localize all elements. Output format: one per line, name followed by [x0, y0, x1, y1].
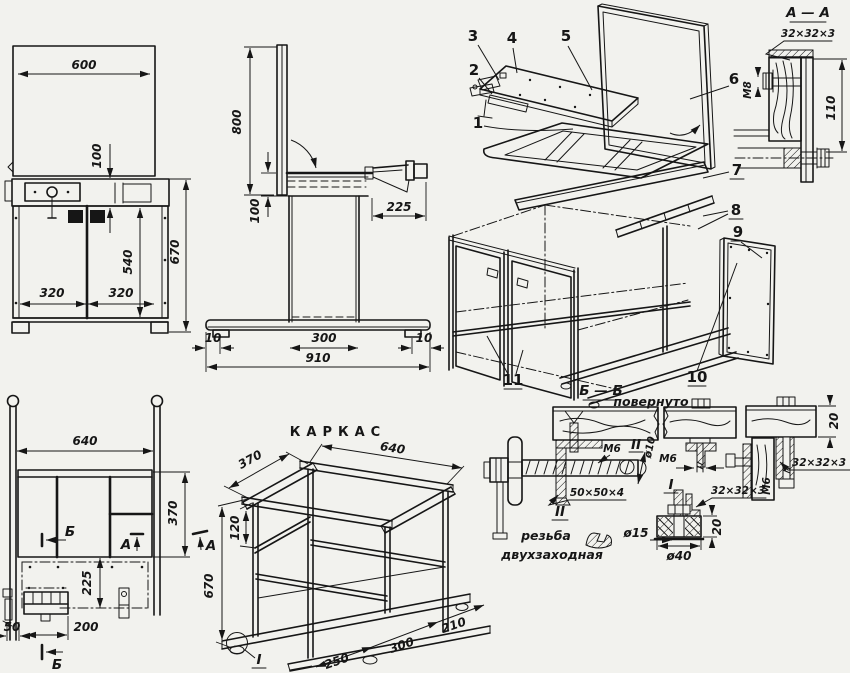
dim-side-225: 225 — [386, 200, 411, 214]
dim-side-910: 910 — [305, 351, 330, 365]
side-view: 800 225 100 10 300 10 910 — [192, 45, 444, 372]
joint-angle-label: 32×32×3 — [792, 457, 846, 469]
dim-front-100: 100 — [90, 143, 104, 168]
clamp-note-ref-ii: II — [555, 504, 565, 520]
callout-9: 9 — [733, 223, 743, 241]
dim-front-320r: 320 — [108, 286, 133, 300]
dim-iso-120: 120 — [228, 515, 242, 540]
section-aa: А — А 32×32×3 М8 110 — [734, 5, 847, 182]
joint-assembly: М6 20 32×32×3 М6 32×32×3 — [659, 395, 850, 507]
clamp-thread-m6: М6 — [603, 443, 621, 455]
clamp-plate-label: 50×50×4 — [570, 487, 624, 499]
callout-4: 4 — [507, 29, 517, 47]
section-aa-title: А — А — [785, 5, 830, 21]
frame-iso-view: КАРКАС I 370 640 120 670 — [193, 425, 490, 672]
workbench-drawing: 600 100 540 670 320 320 800 — [0, 0, 850, 673]
dim-plan-50: 50 — [4, 620, 21, 634]
dim-iso-370: 370 — [236, 447, 265, 471]
clamp-detail-ii-ref: II — [631, 437, 641, 453]
dim-iso-640: 640 — [379, 439, 406, 457]
clamp-note-line1: резьба — [520, 528, 571, 543]
dim-iso-670: 670 — [202, 573, 216, 598]
clamp-rod-diameter: ø10 — [642, 435, 658, 460]
dim-front-540: 540 — [121, 249, 135, 274]
section-aa-110: 110 — [824, 95, 838, 120]
callout-2: 2 — [469, 61, 479, 79]
front-view: 600 100 540 670 320 320 — [5, 46, 191, 333]
callout-3: 3 — [468, 27, 478, 45]
dim-iso-300: 300 — [388, 635, 416, 656]
dim-plan-640: 640 — [72, 434, 97, 448]
section-aa-profile: 32×32×3 — [781, 28, 835, 40]
callout-5: 5 — [561, 27, 571, 45]
marker-b-bottom: Б — [52, 657, 62, 673]
detail-i-bolt-diameter: ø15 — [623, 526, 649, 540]
dim-iso-250: 250 — [323, 651, 351, 672]
callout-8: 8 — [731, 201, 741, 219]
exploded-view: 1 2 3 4 5 6 7 8 9 10 11 — [449, 4, 775, 408]
callout-11: 11 — [503, 371, 524, 389]
clamp-note-line2: двухзаходная — [500, 547, 603, 562]
marker-a-plan: А — [120, 537, 131, 553]
dim-side-100: 100 — [248, 198, 262, 223]
dim-front-670: 670 — [168, 239, 182, 264]
dim-plan-200: 200 — [73, 620, 98, 634]
callout-7: 7 — [732, 161, 742, 179]
detail-i: I 20 ø15 ø40 — [623, 477, 724, 563]
dim-side-300: 300 — [311, 331, 336, 345]
dim-side-10l: 10 — [205, 331, 222, 345]
dim-side-800: 800 — [230, 109, 244, 134]
dim-side-10r: 10 — [416, 331, 433, 345]
frame-iso-title: КАРКАС — [290, 425, 386, 440]
blueprint-page: 600 100 540 670 320 320 800 — [0, 0, 850, 673]
frame-marker-a: А — [205, 538, 216, 554]
dim-plan-370: 370 — [166, 500, 180, 525]
section-bb: Б — Б повернуто М6 II ø10 50×50×4 — [484, 383, 850, 563]
detail-i-title: I — [668, 477, 673, 493]
marker-b-top: Б — [65, 524, 75, 540]
frame-detail-i-ref: I — [256, 652, 261, 668]
dim-front-600: 600 — [71, 58, 96, 72]
detail-i-pad-height: 20 — [710, 519, 724, 536]
callout-6: 6 — [729, 70, 739, 88]
dim-front-320l: 320 — [39, 286, 64, 300]
detail-i-pad-diameter: ø40 — [666, 549, 692, 563]
plan-view: 640 370 Б А 225 50 200 Б — [1, 396, 190, 673]
joint-thread-m6-left: М6 — [659, 453, 677, 465]
section-aa-bolt: М8 — [742, 81, 754, 99]
callout-1: 1 — [473, 114, 483, 132]
dim-plan-225: 225 — [80, 570, 94, 595]
joint-angle-label-2: 32×32×3 — [711, 485, 765, 497]
joint-board-thickness: 20 — [827, 413, 841, 430]
